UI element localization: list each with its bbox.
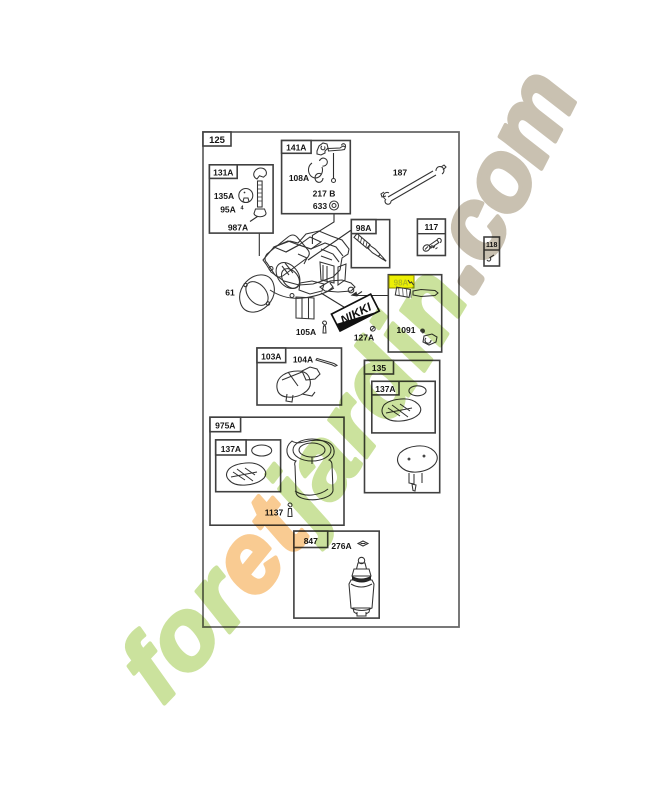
svg-text:108A: 108A — [289, 173, 309, 183]
svg-text:135A: 135A — [214, 191, 234, 201]
svg-text:95A: 95A — [220, 205, 236, 215]
svg-text:103A: 103A — [261, 352, 281, 362]
svg-text:217 B: 217 B — [313, 189, 336, 199]
svg-text:141A: 141A — [286, 143, 306, 153]
svg-text:98A: 98A — [356, 223, 372, 233]
svg-text:187: 187 — [393, 168, 407, 178]
svg-text:104A: 104A — [293, 355, 313, 365]
svg-text:633: 633 — [313, 201, 327, 211]
svg-text:125: 125 — [209, 135, 226, 146]
svg-text:131A: 131A — [213, 168, 233, 178]
svg-text:105A: 105A — [296, 327, 316, 337]
svg-text:987A: 987A — [228, 223, 248, 233]
svg-text:137A: 137A — [221, 444, 241, 454]
svg-text:975A: 975A — [215, 421, 235, 431]
svg-text:276A: 276A — [331, 541, 351, 551]
svg-text:61: 61 — [225, 288, 235, 298]
